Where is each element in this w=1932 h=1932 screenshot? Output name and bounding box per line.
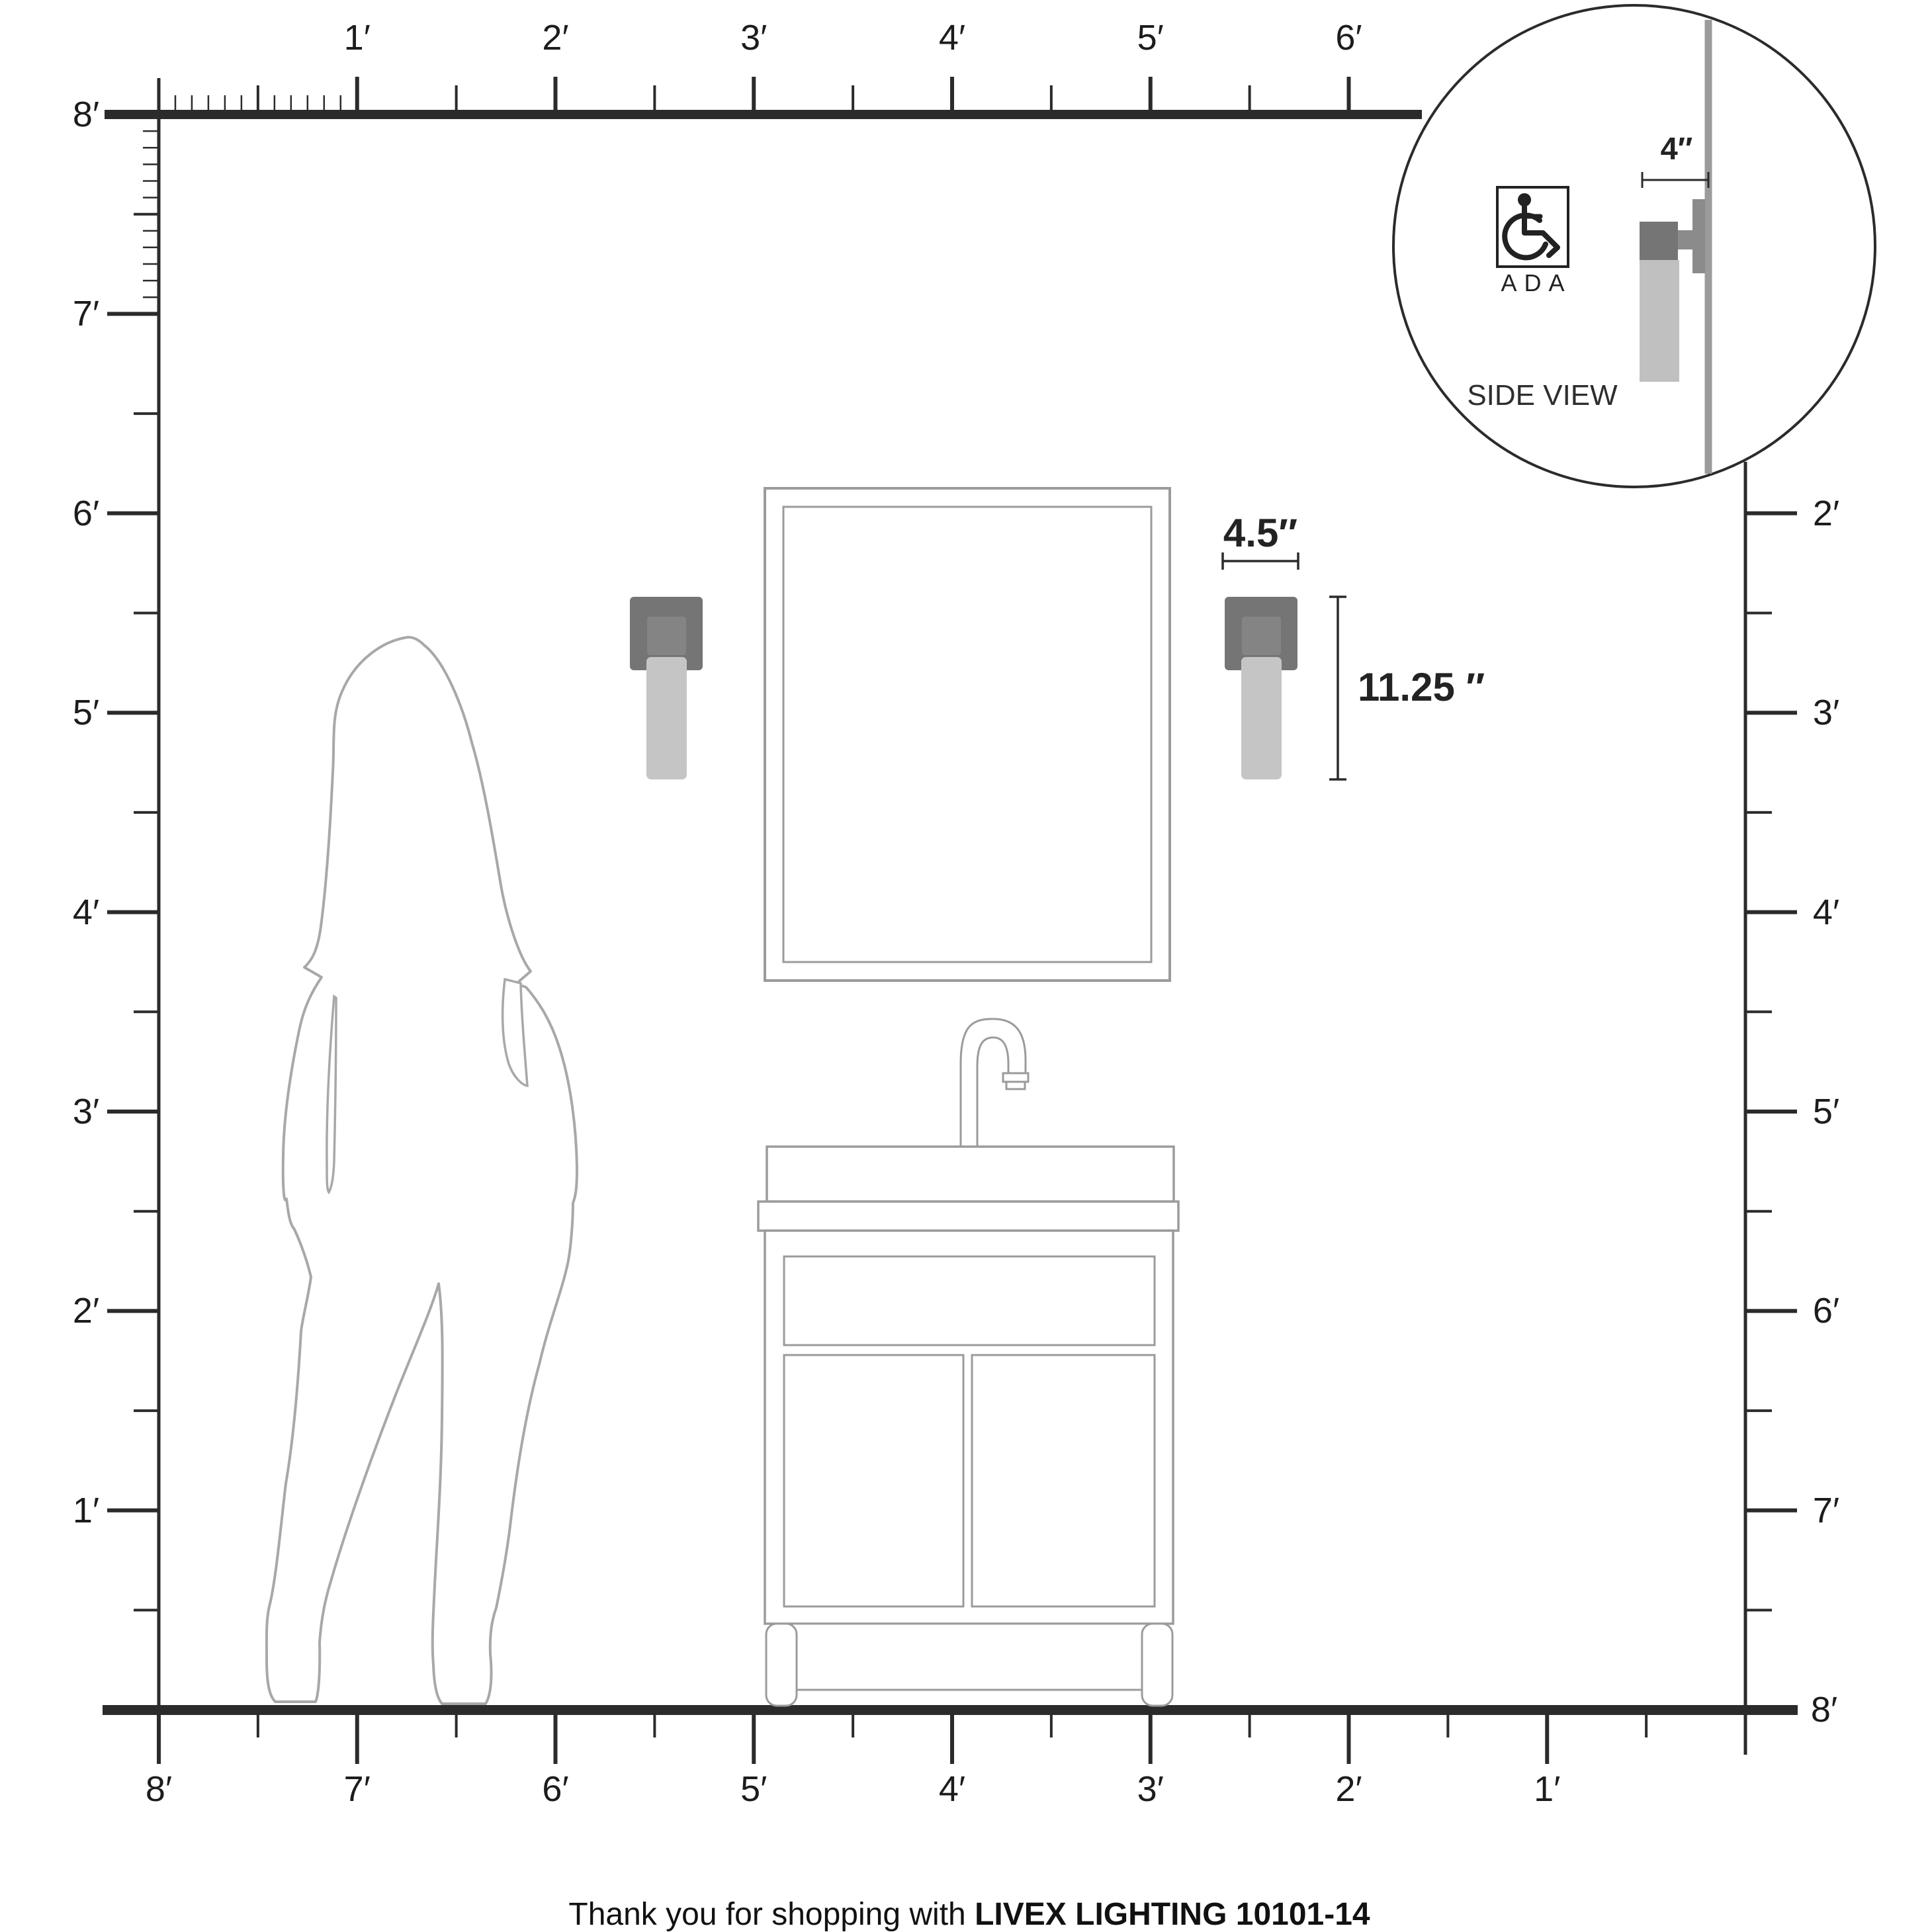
footer-brand: LIVEX LIGHTING 10101-14 bbox=[975, 1897, 1370, 1932]
footer-tagline: Thank you for shopping with LIVEX LIGHTI… bbox=[568, 1899, 1370, 1931]
diagram-canvas bbox=[0, 0, 1932, 1932]
height-dimension bbox=[1329, 597, 1346, 779]
side-view-inset bbox=[1393, 5, 1875, 487]
sconce-right-glass-shade bbox=[1241, 657, 1282, 779]
left-axis-label: 4′ bbox=[73, 895, 99, 930]
bottom-axis-label: 8′ bbox=[146, 1771, 172, 1807]
right-axis-label: 6′ bbox=[1813, 1293, 1839, 1329]
top-axis-label: 6′ bbox=[1335, 20, 1362, 56]
vanity-toe-rail bbox=[781, 1624, 1159, 1690]
top-axis-label: 4′ bbox=[939, 20, 965, 56]
top-axis-label: 3′ bbox=[740, 20, 767, 56]
vanity-backsplash bbox=[767, 1147, 1174, 1202]
floor-ruler-bar bbox=[103, 1705, 1798, 1715]
bottom-axis-label: 5′ bbox=[740, 1771, 767, 1807]
depth-dimension-label: 4″ bbox=[1661, 133, 1693, 164]
bottom-axis-label: 7′ bbox=[344, 1771, 371, 1807]
bottom-axis-label: 2′ bbox=[1335, 1771, 1362, 1807]
top-axis-label: 5′ bbox=[1137, 20, 1164, 56]
woman-outline bbox=[267, 637, 577, 1704]
right-axis-label: 2′ bbox=[1813, 496, 1839, 531]
side-view-glass-shade bbox=[1640, 260, 1679, 382]
side-view-label: SIDE VIEW bbox=[1467, 381, 1617, 410]
woman-silhouette bbox=[267, 637, 577, 1704]
ada-label: ADA bbox=[1501, 271, 1571, 295]
sconce-right-inner-plate bbox=[1242, 617, 1281, 655]
side-view-backplate bbox=[1692, 199, 1705, 273]
top-axis-label: 2′ bbox=[542, 20, 568, 56]
top-ruler-ticks bbox=[175, 77, 1349, 110]
bottom-axis-label: 6′ bbox=[542, 1771, 568, 1807]
right-ruler-ticks bbox=[1745, 513, 1797, 1610]
left-axis-label: 3′ bbox=[73, 1094, 99, 1129]
faucet-aerator bbox=[1003, 1073, 1028, 1082]
left-axis-label: 2′ bbox=[73, 1293, 99, 1329]
height-dimension-label: 11.25 ″ bbox=[1358, 668, 1485, 707]
left-axis-label: 6′ bbox=[73, 496, 99, 531]
vanity-leg-right bbox=[1142, 1624, 1172, 1706]
mounting-diagram: 1′2′3′4′5′6′8′7′6′5′4′3′2′1′2′3′4′5′6′7′… bbox=[0, 0, 1932, 1932]
vanity-door-right bbox=[972, 1355, 1155, 1606]
left-axis-label: 8′ bbox=[73, 97, 99, 132]
ada-badge bbox=[1497, 187, 1568, 267]
sconce-left-inner-plate bbox=[647, 617, 686, 655]
bottom-ruler-ticks bbox=[159, 1715, 1646, 1764]
left-ruler-ticks bbox=[107, 131, 159, 1610]
left-axis-label: 1′ bbox=[73, 1493, 99, 1528]
right-axis-label: 3′ bbox=[1813, 695, 1839, 730]
sconce-left bbox=[630, 597, 703, 779]
side-view-body bbox=[1640, 222, 1678, 260]
vanity-leg-left bbox=[766, 1624, 797, 1706]
bottom-axis-label: 3′ bbox=[1137, 1771, 1164, 1807]
right-axis-label: 8′ bbox=[1811, 1692, 1837, 1728]
footer-prefix: Thank you for shopping with bbox=[568, 1897, 965, 1932]
width-dimension-label: 4.5″ bbox=[1223, 513, 1297, 553]
vanity-drawer-front bbox=[784, 1256, 1155, 1345]
right-axis-label: 5′ bbox=[1813, 1094, 1839, 1129]
ceiling-ruler-bar bbox=[105, 110, 1422, 119]
left-axis-label: 7′ bbox=[73, 296, 99, 331]
sconce-right bbox=[1225, 597, 1297, 779]
faucet-aerator-tip bbox=[1006, 1082, 1025, 1089]
bottom-axis-label: 4′ bbox=[939, 1771, 965, 1807]
mirror bbox=[765, 488, 1170, 981]
mirror-glass-edge bbox=[783, 507, 1151, 962]
vanity-countertop bbox=[758, 1202, 1178, 1231]
side-view-arm bbox=[1677, 230, 1694, 249]
vanity bbox=[758, 1019, 1178, 1706]
top-axis-label: 1′ bbox=[344, 20, 371, 56]
left-axis-label: 5′ bbox=[73, 695, 99, 730]
right-axis-label: 4′ bbox=[1813, 895, 1839, 930]
sconce-left-glass-shade bbox=[646, 657, 687, 779]
inset-circle bbox=[1393, 5, 1875, 487]
vanity-door-left bbox=[784, 1355, 963, 1606]
right-axis-label: 7′ bbox=[1813, 1493, 1839, 1528]
bottom-axis-label: 1′ bbox=[1534, 1771, 1560, 1807]
